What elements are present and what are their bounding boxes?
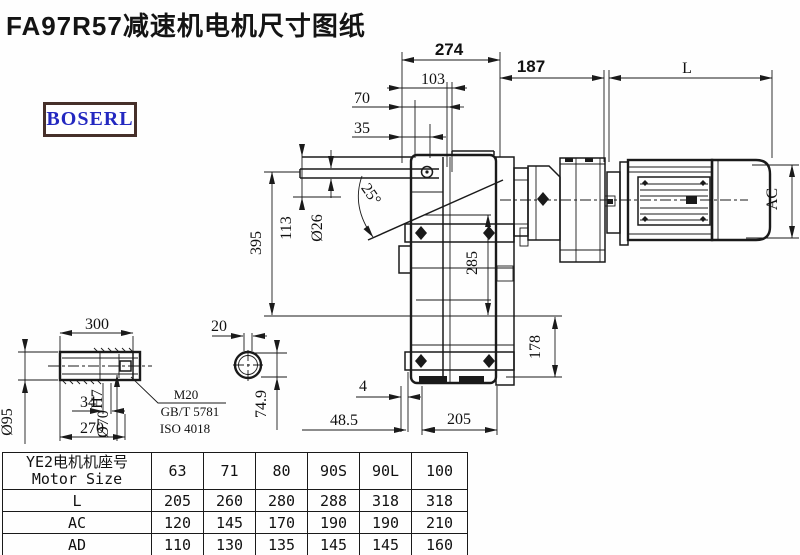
cell: 205 [152,490,204,512]
row-label: AC [3,512,152,534]
dim-205: 205 [447,411,471,428]
col-header: 90S [308,453,360,490]
table-header-motor-size: YE2电机机座号 Motor Size [3,453,152,490]
cell: 130 [204,534,256,555]
dim-70: 70 [354,90,370,107]
cell: 190 [360,512,412,534]
dim-103: 103 [421,71,445,88]
dim-dia95: Ø95 [0,408,16,436]
hollow-shaft-detail [48,348,226,403]
dim-74-9: 74.9 [253,390,270,418]
dim-dia26: Ø26 [309,214,326,242]
dim-300: 300 [85,316,109,333]
input-gear-unit [514,158,615,262]
col-header: 90L [360,453,412,490]
cell: 288 [308,490,360,512]
cell: 135 [256,534,308,555]
col-header: 100 [412,453,468,490]
bolt-spec-gbt: GB/T 5781 [161,404,220,419]
cell: 210 [412,512,468,534]
dim-285: 285 [464,251,481,275]
cell: 190 [308,512,360,534]
dim-113: 113 [278,216,295,239]
table-header-en: Motor Size [3,471,151,488]
page: FA97R57减速机电机尺寸图纸 BOSERL [0,0,800,555]
dim-angle-25: 25° [357,180,384,208]
gearbox-housing [399,151,514,385]
torque-arm [300,157,503,240]
dim-178: 178 [527,335,544,359]
cell: 260 [204,490,256,512]
row-label: L [3,490,152,512]
bolt-spec-iso: ISO 4018 [160,421,210,436]
dim-274: 274 [435,40,464,59]
table-header-cn: YE2电机机座号 [3,454,151,471]
dim-187: 187 [517,57,545,76]
dim-48-5: 48.5 [330,412,358,429]
table-row: AD 110 130 135 145 145 160 [3,534,468,555]
table-header-row: YE2电机机座号 Motor Size 63 71 80 90S 90L 100 [3,453,468,490]
row-label: AD [3,534,152,555]
dim-dia70: Ø70 [95,410,112,438]
col-header: 71 [204,453,256,490]
cell: 145 [360,534,412,555]
dim-20: 20 [211,318,227,335]
cell: 318 [412,490,468,512]
bolt-spec-m20: M20 [174,387,199,402]
cell: 110 [152,534,204,555]
dim-L: L [682,60,692,77]
dim-395: 395 [248,231,265,255]
cell: 280 [256,490,308,512]
dim-AC: AC [764,188,781,210]
table-row: AC 120 145 170 190 190 210 [3,512,468,534]
motor-size-table: YE2电机机座号 Motor Size 63 71 80 90S 90L 100… [2,452,468,555]
dimension-lines [25,60,792,444]
cell: 318 [360,490,412,512]
cell: 145 [204,512,256,534]
shaft-section-detail [233,350,263,381]
cell: 145 [308,534,360,555]
col-header: 80 [256,453,308,490]
cell: 120 [152,512,204,534]
dim-dia70-tolerance: H7 [89,389,106,409]
cell: 160 [412,534,468,555]
table-row: L 205 260 280 288 318 318 [3,490,468,512]
dim-4: 4 [359,378,367,395]
dim-35: 35 [354,120,370,137]
col-header: 63 [152,453,204,490]
technical-drawing: 274 103 70 35 187 L 395 113 Ø26 25° 285 … [0,0,800,450]
cell: 170 [256,512,308,534]
